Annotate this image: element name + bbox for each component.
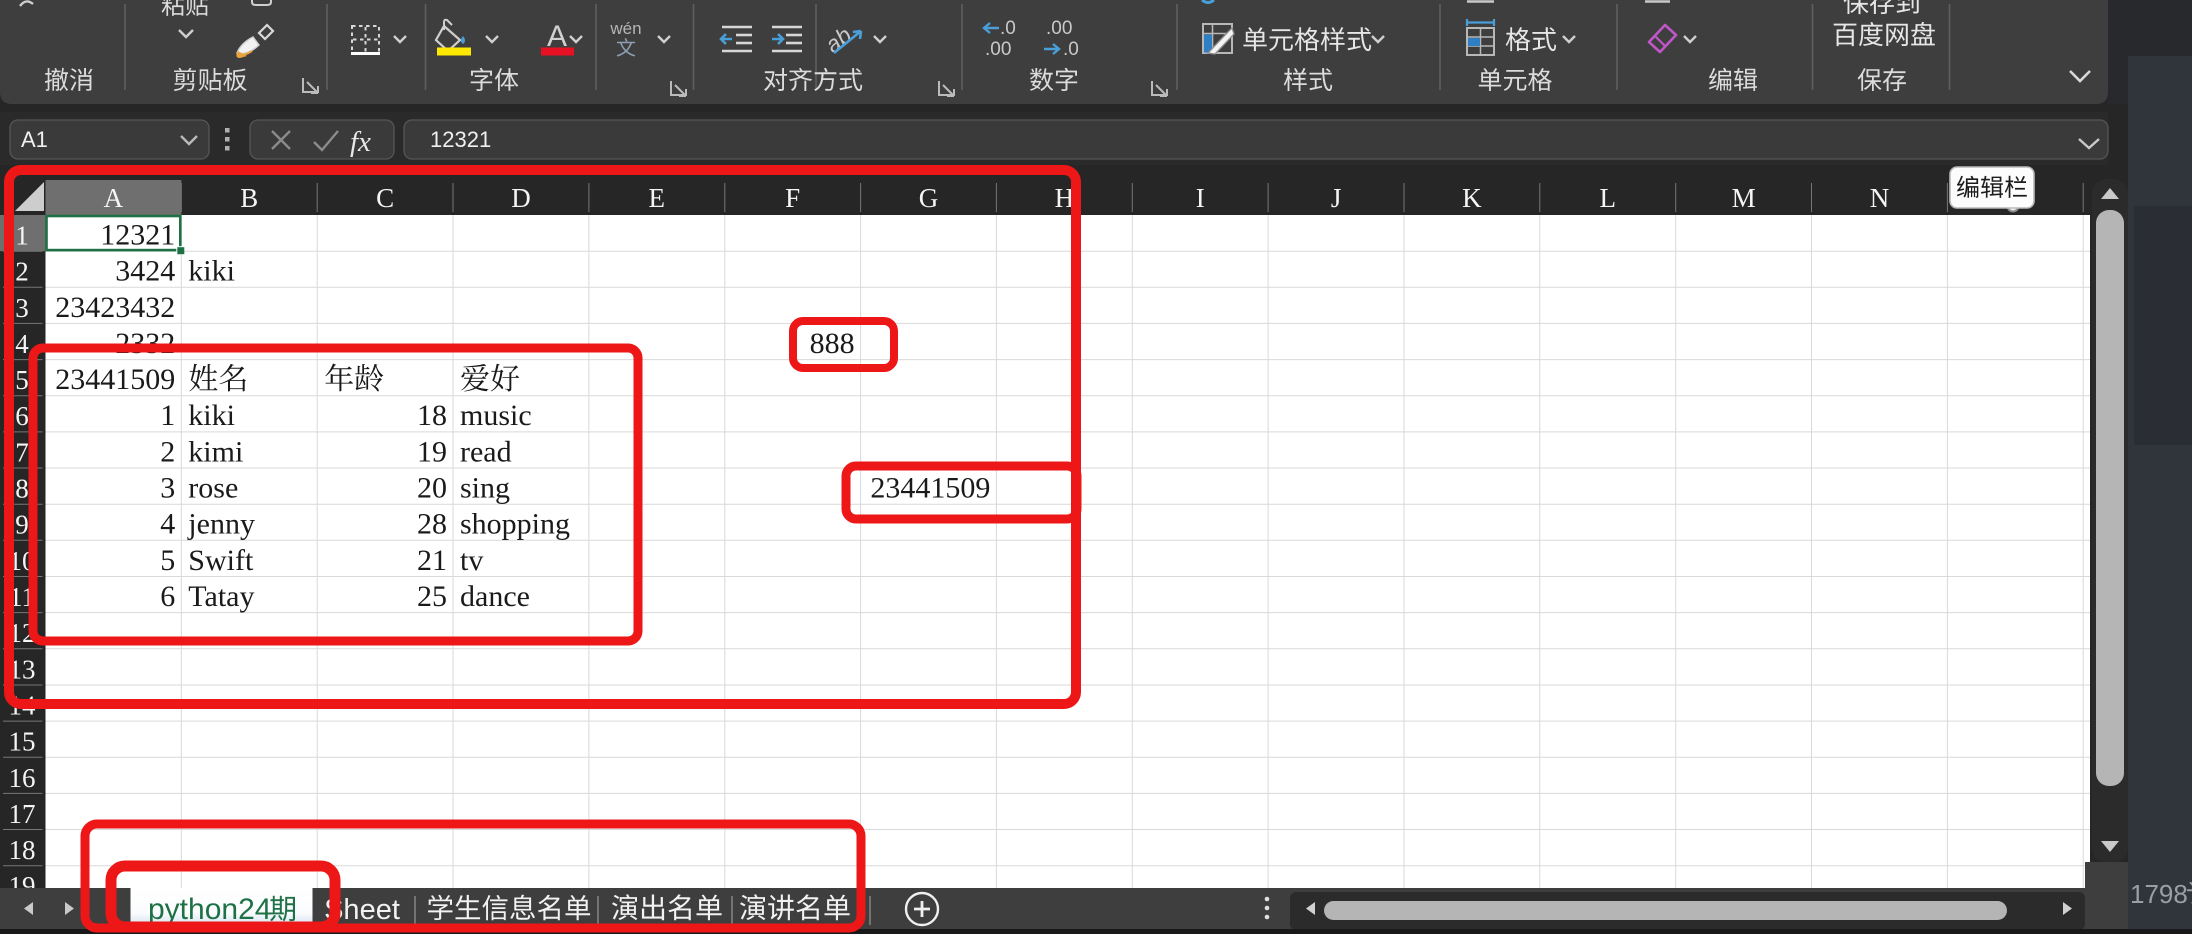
svg-text:6: 6 xyxy=(160,580,175,613)
svg-text:A1: A1 xyxy=(21,127,48,152)
svg-text:4: 4 xyxy=(15,329,29,359)
svg-text:21: 21 xyxy=(417,544,447,577)
svg-text:12321: 12321 xyxy=(100,219,175,252)
svg-text:N: N xyxy=(1870,183,1890,213)
svg-text:23441509: 23441509 xyxy=(55,363,175,396)
svg-text:fx: fx xyxy=(350,126,371,158)
svg-text:23441509: 23441509 xyxy=(870,472,990,505)
svg-text:.00: .00 xyxy=(1046,18,1072,39)
svg-text:12321: 12321 xyxy=(430,127,491,152)
svg-text:2: 2 xyxy=(160,435,175,468)
svg-text:8: 8 xyxy=(15,474,29,504)
svg-text:python24: python24 xyxy=(148,893,271,926)
svg-text:sing: sing xyxy=(460,472,510,505)
svg-text:Swift: Swift xyxy=(188,544,254,577)
svg-text:4: 4 xyxy=(160,508,175,541)
svg-text:jenny: jenny xyxy=(187,508,255,541)
svg-text:kiki: kiki xyxy=(188,255,235,288)
svg-text:dance: dance xyxy=(460,580,530,613)
svg-text:read: read xyxy=(460,435,512,468)
svg-text:J: J xyxy=(1331,183,1342,213)
svg-text:2: 2 xyxy=(15,257,29,287)
svg-text:1: 1 xyxy=(15,221,29,251)
svg-text:A: A xyxy=(104,183,124,213)
svg-text:5: 5 xyxy=(160,544,175,577)
svg-text:G: G xyxy=(919,183,939,213)
svg-text:25: 25 xyxy=(417,580,447,613)
svg-text:.0: .0 xyxy=(1063,39,1079,60)
svg-text:F: F xyxy=(785,183,800,213)
svg-text:20: 20 xyxy=(417,472,447,505)
svg-text:C: C xyxy=(376,183,394,213)
svg-text:3: 3 xyxy=(160,472,175,505)
svg-text:D: D xyxy=(511,183,531,213)
svg-text:18: 18 xyxy=(9,835,36,865)
svg-text:I: I xyxy=(1196,183,1205,213)
svg-text:kimi: kimi xyxy=(188,435,243,468)
svg-text:28: 28 xyxy=(417,508,447,541)
svg-text:kiki: kiki xyxy=(188,399,235,432)
svg-text:9: 9 xyxy=(15,510,29,540)
svg-text:6: 6 xyxy=(15,401,29,431)
svg-text:7: 7 xyxy=(15,437,29,467)
svg-text:shopping: shopping xyxy=(460,508,570,541)
svg-text:17: 17 xyxy=(9,799,36,829)
svg-text:wén: wén xyxy=(609,19,641,38)
svg-text:Tatay: Tatay xyxy=(188,580,254,613)
svg-text:1798: 1798 xyxy=(2130,879,2188,909)
svg-text:E: E xyxy=(649,183,666,213)
svg-text:888: 888 xyxy=(810,327,855,360)
svg-text:B: B xyxy=(240,183,258,213)
svg-text:19: 19 xyxy=(417,435,447,468)
svg-text:music: music xyxy=(460,399,532,432)
svg-text:18: 18 xyxy=(417,399,447,432)
svg-text:.0: .0 xyxy=(1000,18,1016,39)
svg-text:3: 3 xyxy=(15,293,29,323)
svg-text:1: 1 xyxy=(160,399,175,432)
svg-text:M: M xyxy=(1732,183,1756,213)
svg-text:rose: rose xyxy=(188,472,238,505)
svg-text:tv: tv xyxy=(460,544,483,577)
svg-text:15: 15 xyxy=(9,727,36,757)
svg-text:23423432: 23423432 xyxy=(55,291,175,324)
svg-text:5: 5 xyxy=(15,365,29,395)
svg-text:K: K xyxy=(1462,183,1482,213)
svg-text:3424: 3424 xyxy=(115,255,175,288)
svg-text:16: 16 xyxy=(9,763,36,793)
svg-text:.00: .00 xyxy=(985,39,1011,60)
svg-text:L: L xyxy=(1600,183,1617,213)
svg-text:2332: 2332 xyxy=(115,327,175,360)
